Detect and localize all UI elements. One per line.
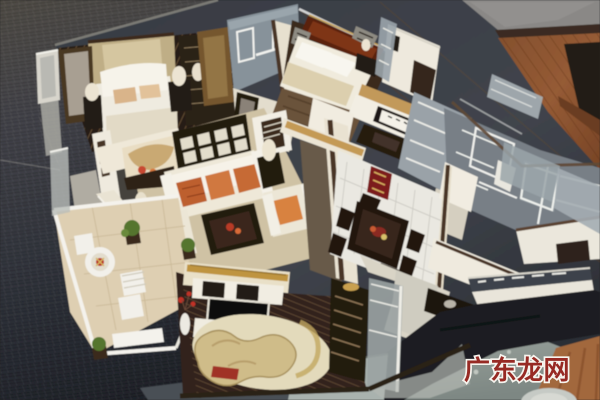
svg-text:广东龙网: 广东龙网 bbox=[464, 355, 570, 385]
